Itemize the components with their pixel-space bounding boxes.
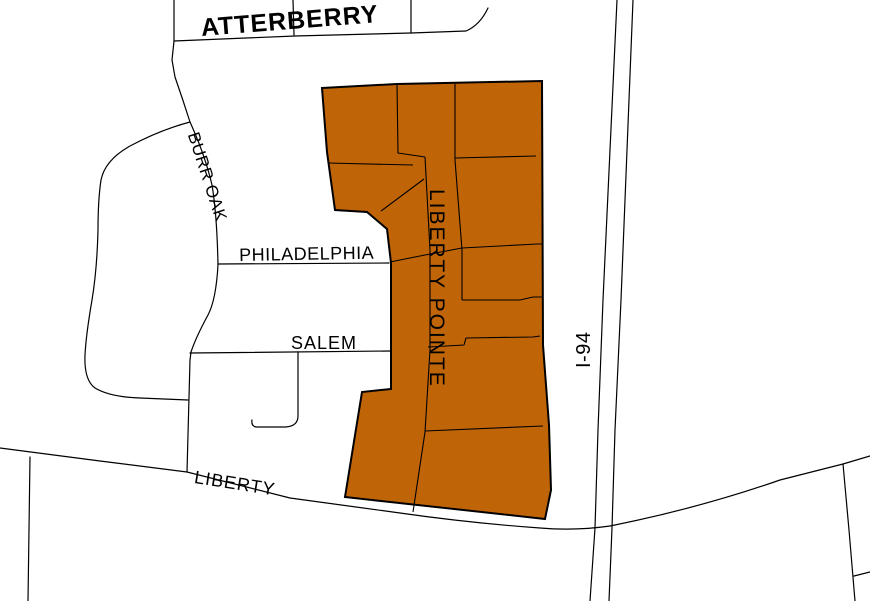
southeast-spur-line xyxy=(854,572,870,576)
road-southeast-line xyxy=(843,464,855,601)
map-canvas[interactable]: ATTERBERRY BURR OAK PHILADELPHIA SALEM L… xyxy=(0,0,870,601)
parcel-line-southwest xyxy=(28,457,30,601)
road-burr-oak-line xyxy=(172,41,218,472)
salem-stub-line xyxy=(252,352,298,427)
loop-boundary-line xyxy=(85,122,190,400)
road-label-philadelphia: PHILADELPHIA xyxy=(239,244,374,266)
highway-label-i94: I-94 xyxy=(573,332,595,368)
road-salem-line xyxy=(190,351,390,353)
parcel-label-liberty-pointe: LIBERTY POINTE xyxy=(425,189,448,388)
road-label-salem: SALEM xyxy=(291,334,357,354)
